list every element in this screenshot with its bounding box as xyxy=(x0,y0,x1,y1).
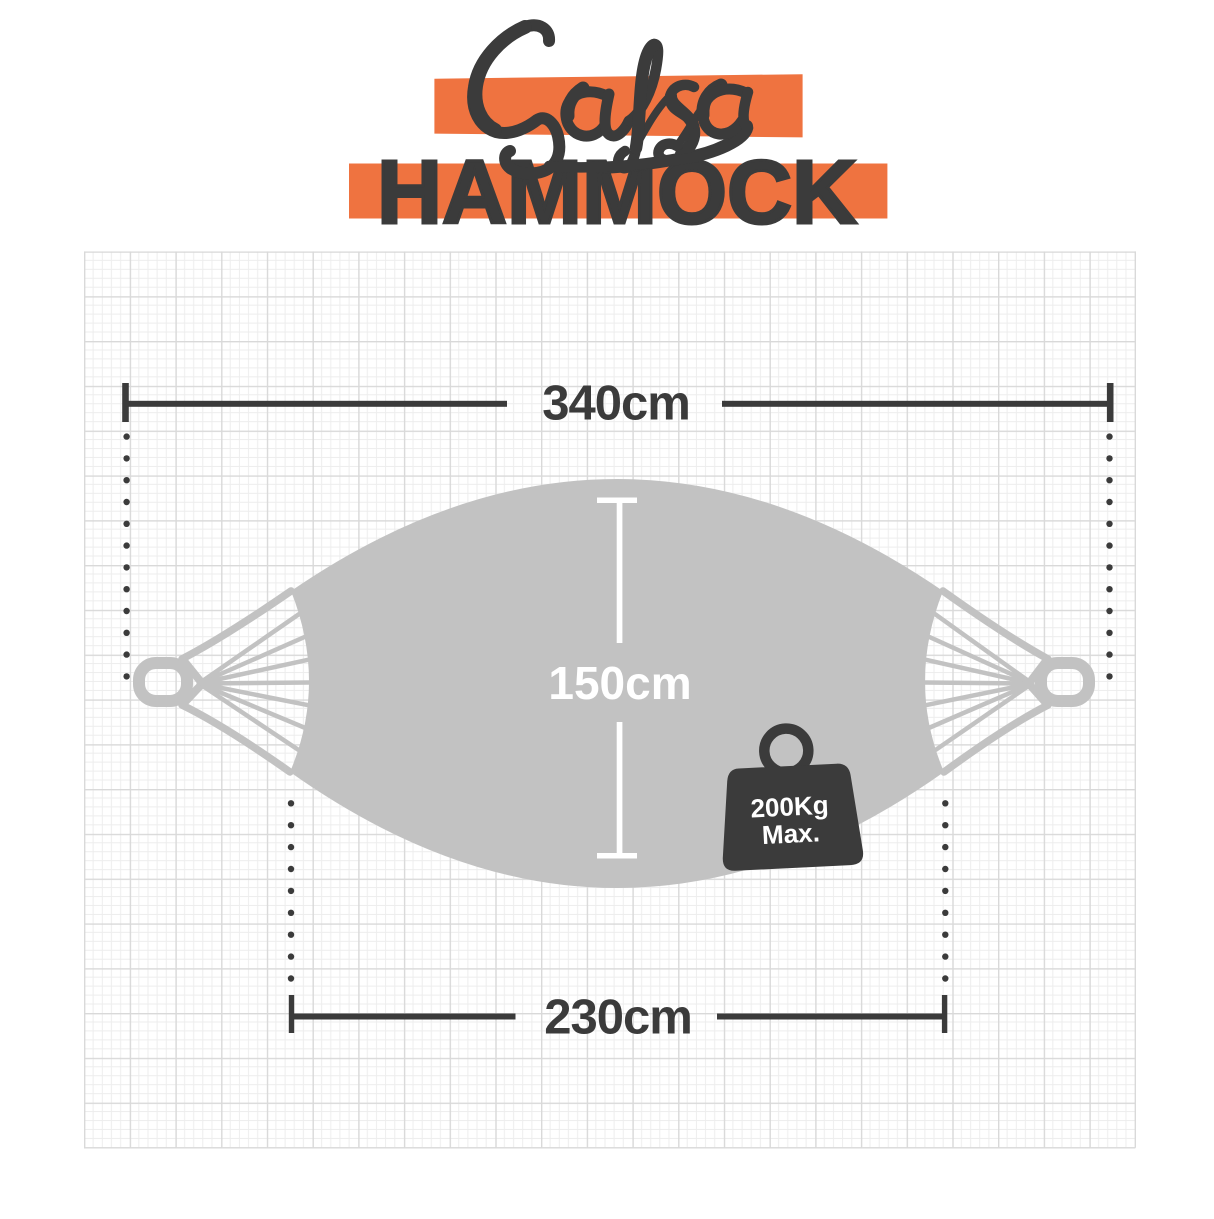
svg-text:340cm: 340cm xyxy=(542,377,690,431)
svg-text:230cm: 230cm xyxy=(544,991,692,1045)
svg-text:150cm: 150cm xyxy=(548,657,691,709)
svg-text:Max.: Max. xyxy=(761,817,820,850)
